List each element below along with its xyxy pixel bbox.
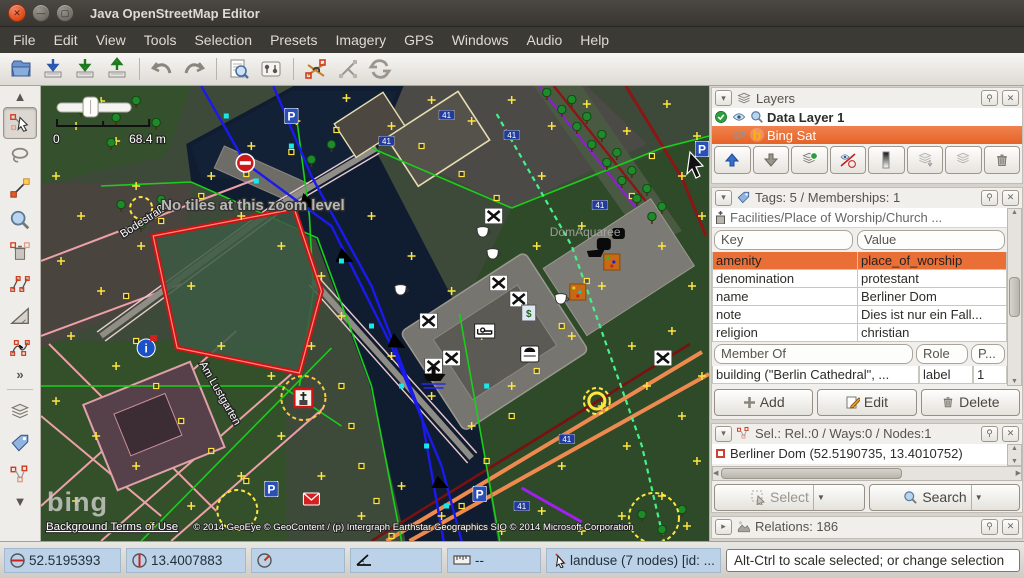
right-panel-column: ▾ Layers ⚲ ✕ Data Layer 1 b Bing Sat	[709, 86, 1024, 541]
edit-tag-button[interactable]: Edit	[817, 389, 916, 416]
open-button[interactable]	[6, 55, 36, 83]
selected-node-church-icon	[294, 389, 312, 407]
draw-node-tool-button[interactable]	[4, 173, 36, 203]
menu-help[interactable]: Help	[571, 29, 618, 51]
delete-tool-button[interactable]	[4, 237, 36, 267]
download-data-button[interactable]	[38, 55, 68, 83]
heading-icon	[257, 553, 272, 568]
tags-collapse-button[interactable]: ▾	[715, 190, 732, 206]
selection-hscrollbar[interactable]: ◀▶	[712, 466, 1022, 481]
selection-toggle-button[interactable]	[4, 460, 36, 490]
layers-collapse-button[interactable]: ▾	[715, 90, 732, 106]
tags-panel: ▾ Tags: 5 / Memberships: 1 ⚲ ✕ Facilitie…	[711, 187, 1023, 420]
layers-close-button[interactable]: ✕	[1002, 90, 1019, 106]
layer-name: Data Layer 1	[767, 110, 844, 125]
select-dropdown-arrow[interactable]: ▼	[813, 485, 828, 510]
window-close-button[interactable]: ✕	[8, 4, 26, 22]
heading-field	[251, 548, 345, 573]
area-label-domaquaree: DomAquaree	[550, 225, 621, 239]
search-dropdown-arrow[interactable]: ▼	[971, 485, 986, 510]
svg-text:i: i	[144, 342, 147, 356]
layers-panel: ▾ Layers ⚲ ✕ Data Layer 1 b Bing Sat	[711, 87, 1023, 184]
selection-panel-title: Sel.: Rel.:0 / Ways:0 / Nodes:1	[755, 426, 977, 441]
tags-pin-button[interactable]: ⚲	[981, 190, 998, 206]
value-column-header[interactable]: Value	[857, 230, 1005, 250]
key-column-header[interactable]: Key	[714, 230, 853, 250]
menu-windows[interactable]: Windows	[443, 29, 518, 51]
relations-panel: ▸ Relations: 186 ⚲ ✕	[711, 516, 1023, 539]
menu-bar: File Edit View Tools Selection Presets I…	[0, 27, 1024, 53]
node-marker-icon	[716, 449, 725, 458]
search-button[interactable]: Search▼	[869, 484, 1020, 511]
layers-pin-button[interactable]: ⚲	[981, 90, 998, 106]
window-minimize-button[interactable]: —	[32, 4, 50, 22]
tags-panel-title: Tags: 5 / Memberships: 1	[755, 190, 977, 205]
menu-view[interactable]: View	[87, 29, 135, 51]
select-button[interactable]: Select▼	[714, 484, 865, 511]
select-tool-button[interactable]	[3, 107, 37, 139]
relations-close-button[interactable]: ✕	[1002, 519, 1019, 535]
tag-row[interactable]: religionchristian	[712, 324, 1007, 342]
save-button[interactable]	[70, 55, 100, 83]
tag-row[interactable]: noteDies ist nur ein Fall...	[712, 306, 1007, 324]
map-canvas[interactable]: i $ Bodest	[41, 86, 709, 541]
menu-selection[interactable]: Selection	[185, 29, 261, 51]
upload-button[interactable]	[102, 55, 132, 83]
active-check-icon	[714, 110, 728, 124]
toolbar-collapse-up[interactable]: ▲	[4, 87, 36, 105]
distance-field: --	[447, 548, 541, 573]
selection-panel: ▾ Sel.: Rel.:0 / Ways:0 / Nodes:1 ⚲ ✕ Be…	[711, 423, 1023, 513]
bing-layer-icon: b	[750, 128, 764, 142]
preferences-button[interactable]	[256, 55, 286, 83]
layer-opacity-button[interactable]	[868, 146, 905, 174]
layer-row-bing[interactable]: b Bing Sat	[712, 126, 1022, 144]
more-tools-button[interactable]: »	[4, 365, 36, 383]
menu-tools[interactable]: Tools	[135, 29, 186, 51]
selection-collapse-button[interactable]: ▾	[715, 426, 732, 442]
menu-file[interactable]: File	[4, 29, 45, 51]
layer-visibility-button[interactable]	[830, 146, 867, 174]
angle-icon	[356, 553, 372, 567]
selection-panel-icon	[736, 426, 751, 441]
toolbar-separator	[293, 58, 294, 80]
longitude-icon	[132, 553, 147, 568]
imagery-copyright: © 2014 GeoEye © GeoContent / (p) Intergr…	[193, 522, 634, 533]
latitude-field: 52.5195393	[4, 548, 121, 573]
tags-panel-icon	[736, 190, 751, 205]
position-column-header[interactable]: P...	[971, 344, 1005, 364]
relations-panel-title: Relations: 186	[755, 519, 977, 534]
tag-row[interactable]: nameBerliner Dom	[712, 288, 1007, 306]
tags-close-button[interactable]: ✕	[1002, 190, 1019, 206]
main-toolbar	[0, 53, 1024, 86]
scale-min-label: 0	[53, 132, 60, 146]
scale-max-label: 68.4 m	[129, 132, 166, 146]
tag-row[interactable]: denominationprotestant	[712, 270, 1007, 288]
layer-row-data[interactable]: Data Layer 1	[712, 108, 1022, 126]
status-help-text: Alt-Ctrl to scale selected; or change se…	[726, 549, 1020, 572]
menu-imagery[interactable]: Imagery	[327, 29, 396, 51]
extrude-tool-button[interactable]	[4, 301, 36, 331]
svg-text:$: $	[526, 309, 532, 320]
lasso-tool-button[interactable]	[4, 141, 36, 171]
menu-audio[interactable]: Audio	[517, 29, 571, 51]
layers-panel-title: Layers	[756, 91, 977, 106]
toolbar-collapse-down[interactable]: ▼	[4, 492, 36, 510]
church-preset-icon	[715, 211, 726, 224]
visible-eye-icon	[731, 110, 747, 124]
latitude-icon	[10, 553, 25, 568]
parallel-way-tool-button[interactable]	[4, 269, 36, 299]
angle-field	[350, 548, 442, 573]
layer-name: Bing Sat	[767, 128, 816, 143]
map-svg: i $ Bodest	[41, 86, 709, 541]
title-bar: ✕ — ▢ Java OpenStreetMap Editor	[0, 0, 1024, 27]
menu-edit[interactable]: Edit	[45, 29, 87, 51]
preset-link[interactable]: Facilities/Place of Worship/Church ...	[712, 208, 1007, 228]
tags-scrollbar[interactable]: ▲▼	[1007, 208, 1022, 386]
window-title: Java OpenStreetMap Editor	[90, 6, 260, 21]
relations-expand-button[interactable]: ▸	[715, 519, 732, 535]
delete-tag-button[interactable]: Delete	[921, 389, 1020, 416]
tags-toggle-button[interactable]	[4, 428, 36, 458]
selection-pin-button[interactable]: ⚲	[981, 426, 998, 442]
bing-logo: bing	[47, 487, 108, 517]
selection-close-button[interactable]: ✕	[1002, 426, 1019, 442]
layer-merge-button[interactable]	[907, 146, 944, 174]
tools-separator	[7, 389, 33, 390]
window-maximize-button[interactable]: ▢	[56, 4, 74, 22]
layer-move-down-button[interactable]	[753, 146, 790, 174]
hovered-object-field: landuse (7 nodes) [id: ...	[546, 548, 721, 573]
tag-row[interactable]: amenityplace_of_worship	[712, 252, 1007, 270]
layer-move-up-button[interactable]	[714, 146, 751, 174]
layers-panel-icon	[736, 90, 752, 106]
longitude-field: 13.4007883	[126, 548, 246, 573]
edit-toolbar: ▲ » ▼	[0, 86, 41, 541]
toolbar-separator	[139, 58, 140, 80]
layer-delete-button[interactable]	[984, 146, 1021, 174]
selection-list-item[interactable]: Berliner Dom (52.5190735, 13.4010752)	[712, 444, 1007, 464]
membership-row[interactable]: building ("Berlin Cathedral", ... label …	[712, 366, 1007, 384]
redo-button[interactable]	[179, 55, 209, 83]
update-data-button[interactable]	[365, 55, 395, 83]
layer-duplicate-button[interactable]	[945, 146, 982, 174]
role-column-header[interactable]: Role	[916, 344, 968, 364]
member-of-column-header[interactable]: Member Of	[714, 344, 913, 364]
menu-gps[interactable]: GPS	[395, 29, 443, 51]
toolbar-separator	[216, 58, 217, 80]
terms-of-use-link[interactable]: Background Terms of Use	[46, 521, 178, 533]
relations-panel-icon	[736, 519, 751, 534]
data-layer-icon	[750, 110, 764, 124]
menu-presets[interactable]: Presets	[261, 29, 326, 51]
improve-accuracy-tool-button[interactable]	[4, 333, 36, 363]
preferences-search-button[interactable]	[224, 55, 254, 83]
layers-toggle-button[interactable]	[4, 396, 36, 426]
ruler-icon	[453, 555, 471, 565]
layer-activate-button[interactable]	[791, 146, 828, 174]
relations-pin-button[interactable]: ⚲	[981, 519, 998, 535]
no-tiles-tooltip: No tiles at this zoom level	[161, 197, 345, 214]
hidden-eye-icon	[731, 128, 747, 142]
status-bar: 52.5195393 13.4007883 -- landuse (7 node…	[0, 541, 1024, 578]
split-way-button[interactable]	[301, 55, 331, 83]
undo-button[interactable]	[147, 55, 177, 83]
selection-spinner[interactable]: ▲▼	[1007, 444, 1022, 466]
add-tag-button[interactable]: Add	[714, 389, 813, 416]
cursor-node-icon	[552, 553, 566, 568]
zoom-tool-button[interactable]	[4, 205, 36, 235]
combine-way-button[interactable]	[333, 55, 363, 83]
